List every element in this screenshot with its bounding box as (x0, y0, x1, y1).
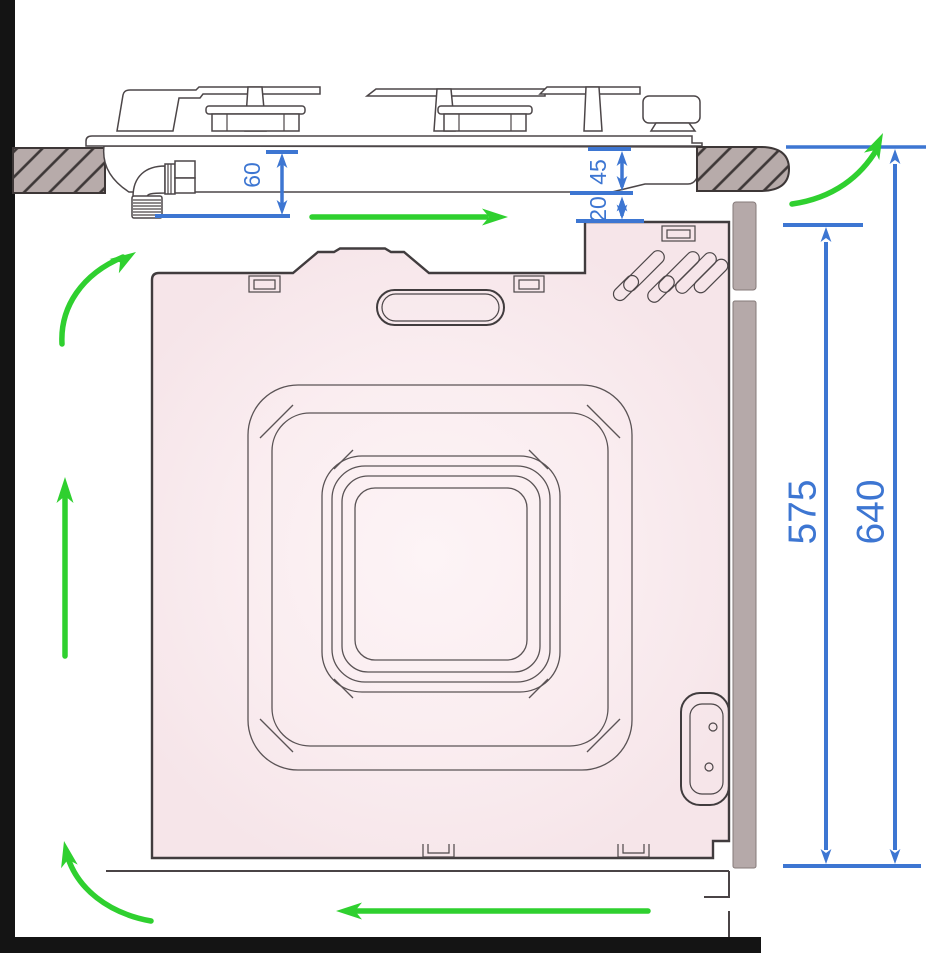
burner2-flange (438, 106, 532, 114)
hob-burners (117, 87, 700, 131)
cabinet-base (106, 871, 729, 937)
burner1-body (212, 114, 299, 131)
plinth-step (704, 871, 729, 897)
gas-nut-lower (175, 178, 195, 193)
airflow-curve-up-at-plinth-arrow (56, 839, 151, 921)
burner1-flange (206, 106, 305, 114)
dim-575-label: 575 (782, 479, 825, 544)
airflow-curve-up-behind-worktop-arrow (792, 129, 891, 204)
dim-45-label: 45 (585, 159, 611, 185)
gas-nut-upper (175, 161, 195, 178)
oven (152, 222, 730, 858)
hob-top-plate (86, 136, 702, 146)
dim-60-label: 60 (239, 162, 265, 188)
oven-body (152, 222, 729, 858)
diagram-canvas: 60 45 20 575 (0, 0, 926, 960)
support-column-right (584, 87, 602, 131)
worktop-left (13, 148, 105, 193)
installation-diagram: 60 45 20 575 (0, 0, 926, 960)
cabinet-side-panel (733, 202, 756, 868)
dim-20-label: 20 (585, 196, 611, 222)
burner-cap-right (643, 96, 700, 123)
burner-cap-base (651, 123, 695, 131)
airflow-curve-into-recess-arrow (62, 245, 141, 344)
burner2-body (444, 114, 526, 131)
dim-640-label: 640 (850, 479, 893, 544)
airflow-up-left-wall-arrow (57, 477, 74, 656)
dimension-20: 20 (576, 196, 644, 222)
floor (0, 937, 761, 953)
pan-support-mid (367, 89, 545, 96)
gas-thread-nipple (165, 164, 175, 194)
airflow-left-under-oven-arrow (336, 903, 648, 920)
airflow-right-under-hob-arrow (312, 209, 508, 226)
worktop-right (697, 147, 789, 191)
wall-left (0, 0, 15, 951)
